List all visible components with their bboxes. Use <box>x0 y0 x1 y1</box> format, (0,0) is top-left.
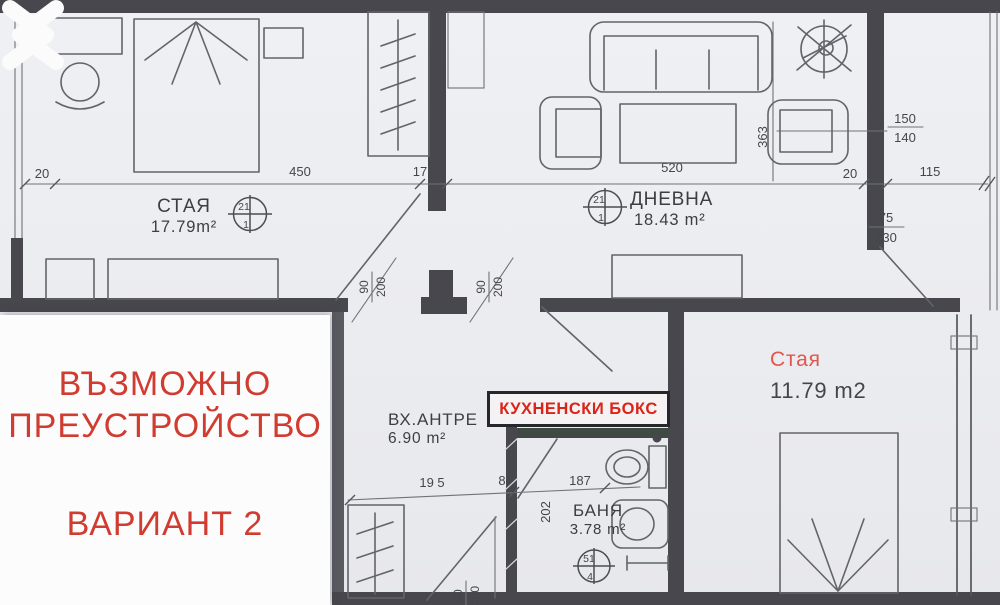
dim-75: 75 <box>879 210 893 225</box>
nightstand <box>264 28 303 58</box>
dnevna-door-swing <box>542 307 612 371</box>
banya-label: БАНЯ 3.78 m² <box>548 501 648 538</box>
balcony-door-swing <box>880 247 933 306</box>
bottom-wall-right <box>540 298 960 312</box>
pillar-base <box>421 297 467 314</box>
door-dim-c: 90 200 <box>451 581 482 605</box>
room2-window-sill <box>951 336 977 349</box>
staya1-cabinet <box>108 259 278 299</box>
dim-115: 115 <box>920 164 941 179</box>
duct <box>448 12 484 88</box>
svg-text:51: 51 <box>583 553 595 565</box>
svg-text:90: 90 <box>474 280 488 294</box>
dim-187: 187 <box>569 473 591 488</box>
room2-window-sill2 <box>951 508 977 521</box>
svg-text:200: 200 <box>468 586 482 605</box>
banya-marker: 51 4 <box>573 548 615 584</box>
dim-140: 140 <box>894 130 916 145</box>
svg-text:200: 200 <box>374 277 388 297</box>
dim-20-right: 20 <box>843 166 857 181</box>
floor-plan: 20 450 17 520 20 115 363 150 140 75 230 … <box>0 0 1000 605</box>
dnevna-marker: 21 1 <box>583 188 627 226</box>
antre-dim-line <box>348 487 640 500</box>
dim-20-left: 20 <box>35 166 49 181</box>
bed-2-pillows <box>788 519 888 591</box>
kitchen-counter-strip <box>517 428 669 438</box>
hall-left-wall <box>332 312 344 605</box>
svg-text:200: 200 <box>491 277 505 297</box>
dim-450: 450 <box>289 164 311 179</box>
caption-overlay: ВЪЗМОЖНО ПРЕУСТРОЙСТВО ВАРИАНТ 2 <box>0 315 330 605</box>
caption-line-1: ВЪЗМОЖНО <box>0 365 330 404</box>
staya1-radiator <box>46 259 94 299</box>
armchair-left <box>540 97 601 169</box>
pillar-stem <box>429 270 453 300</box>
dnevna-label: ДНЕВНА 18.43 m² <box>630 189 713 230</box>
dim-195: 19 5 <box>419 475 444 490</box>
dnevna-radiator <box>612 255 742 298</box>
crossed-out-fixture <box>797 20 851 78</box>
svg-text:90: 90 <box>451 589 465 603</box>
sofa <box>590 22 772 92</box>
entrance-door-swing <box>427 517 496 600</box>
bath-room2-wall <box>668 312 684 605</box>
caption-line-3: ВАРИАНТ 2 <box>0 505 330 544</box>
dim-230: 230 <box>875 230 897 245</box>
antre-label: ВХ.АНТРЕ 6.90 m² <box>388 410 478 447</box>
svg-text:4: 4 <box>587 571 593 583</box>
svg-text:90: 90 <box>357 280 371 294</box>
room-divider-wall <box>428 13 446 211</box>
staya1-label: СТАЯ 17.79m² <box>128 196 240 237</box>
bath-left-wall <box>506 418 517 600</box>
top-exterior-wall <box>0 0 1000 13</box>
toilet-bowl <box>606 450 648 484</box>
dim-17: 17 <box>413 164 427 179</box>
chair-back <box>56 102 104 109</box>
dim-150: 150 <box>894 111 916 126</box>
bed-2 <box>780 433 898 593</box>
bottom-wall-left <box>0 298 348 312</box>
dim-8: 8 <box>498 473 505 488</box>
staya2-label: Стая 11.79 m2 <box>770 348 867 403</box>
drain-dot <box>653 434 662 443</box>
svg-text:21: 21 <box>593 194 605 206</box>
bed-1 <box>134 19 259 172</box>
svg-text:1: 1 <box>243 219 249 231</box>
svg-text:1: 1 <box>598 212 604 224</box>
coffee-table <box>620 104 736 163</box>
toilet-tank <box>649 446 666 488</box>
bed-1-pillows <box>145 22 247 84</box>
caption-line-2: ПРЕУСТРОЙСТВО <box>0 407 330 446</box>
chevron-right-icon[interactable] <box>0 0 60 70</box>
bath-door-swing <box>518 439 557 498</box>
kitchen-box-label: КУХНЕНСКИ БОКС <box>487 391 670 427</box>
